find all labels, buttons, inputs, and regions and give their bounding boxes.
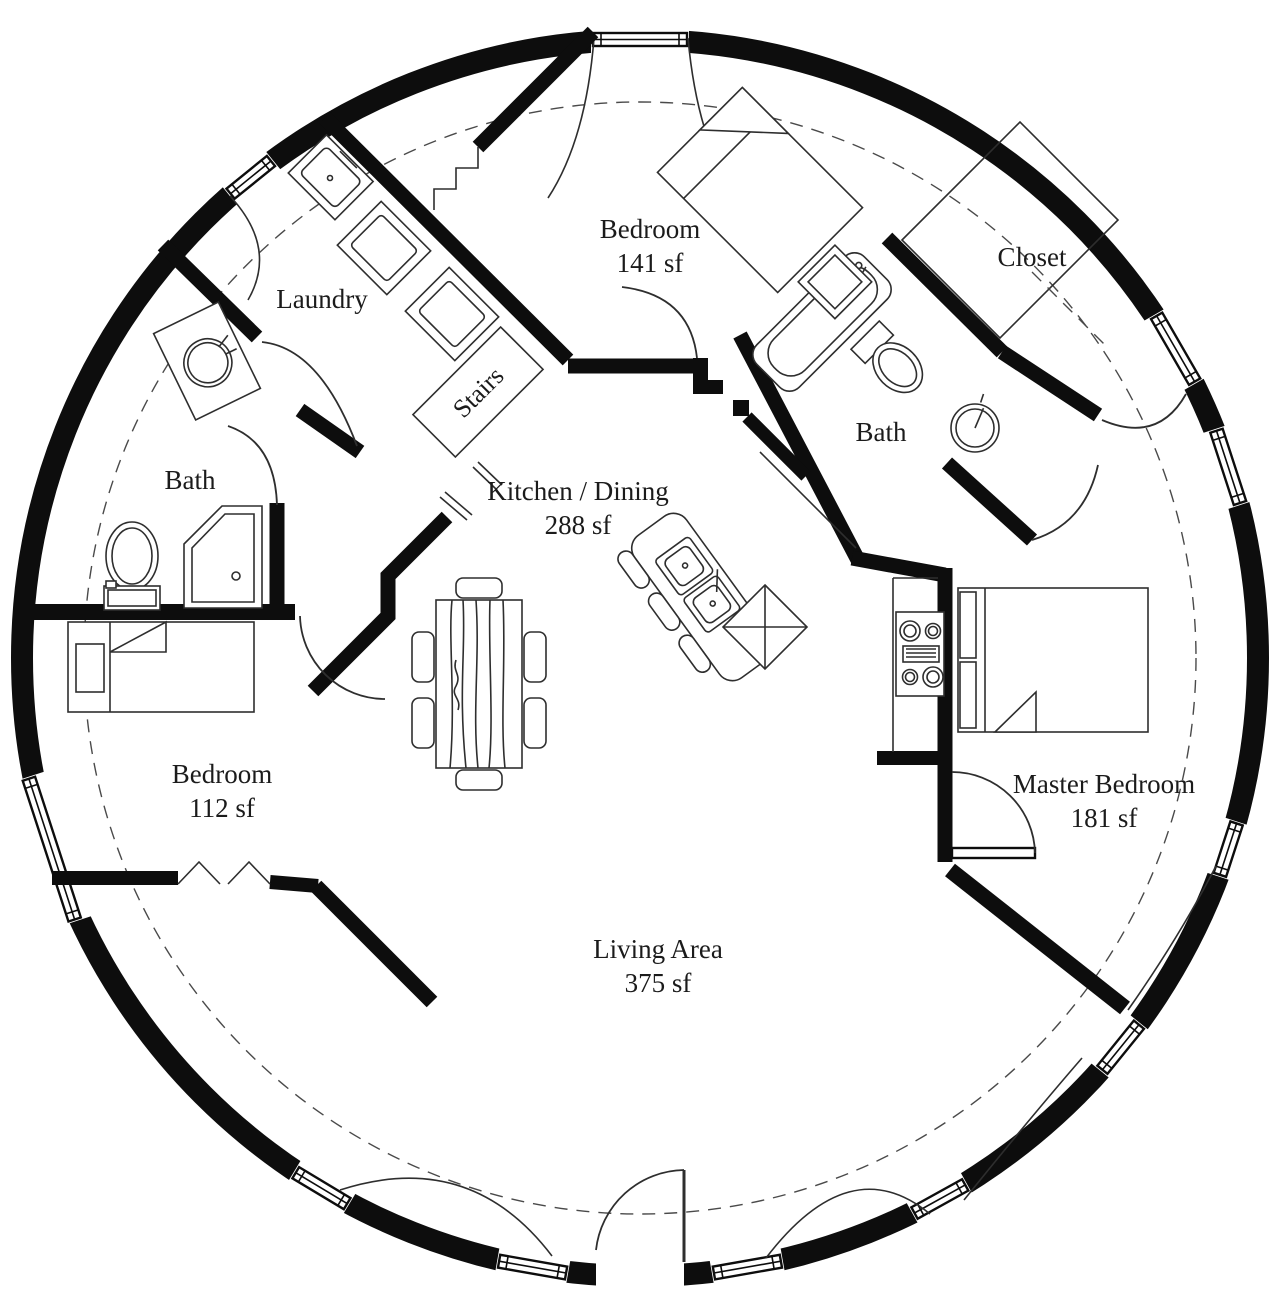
room-label-living: Living Area xyxy=(593,934,723,964)
toilet-icon xyxy=(104,522,160,610)
bedroom-top-door-swing xyxy=(622,287,697,358)
room-label-master: Master Bedroom xyxy=(1013,769,1195,799)
bath-right-door-swing xyxy=(1032,465,1098,540)
room-area-bedroom-top: 141 sf xyxy=(617,248,684,278)
room-label-bath-left: Bath xyxy=(165,465,216,495)
entry-door-icon xyxy=(596,1170,684,1262)
room-area-master: 181 sf xyxy=(1071,803,1138,833)
bed-icon xyxy=(958,588,1148,732)
bath-left-fixtures xyxy=(104,302,262,610)
sidelite-window-icon xyxy=(494,1245,571,1291)
room-label-kitchen: Kitchen / Dining xyxy=(487,476,668,506)
window-icon xyxy=(1204,816,1254,882)
chair-icon xyxy=(524,698,546,748)
room-area-kitchen: 288 sf xyxy=(545,510,612,540)
window-icon xyxy=(12,772,91,927)
floor-plan-drawing: Stairs xyxy=(0,0,1280,1311)
stove-icon xyxy=(896,612,944,696)
chair-icon xyxy=(412,632,434,682)
dining-table-icon xyxy=(412,578,546,790)
room-area-bedroom-left: 112 sf xyxy=(189,793,255,823)
floor-plan-page: Stairs xyxy=(0,0,1280,1311)
window-icon xyxy=(1200,423,1257,510)
bath-left-door-swing xyxy=(228,426,277,505)
room-area-living: 375 sf xyxy=(625,968,692,998)
room-label-closet: Closet xyxy=(997,242,1067,272)
chair-icon xyxy=(412,698,434,748)
chair-icon xyxy=(456,770,502,790)
closet-door-swing xyxy=(1102,394,1186,428)
laundry-door-swing xyxy=(262,342,357,446)
kitchen-counter xyxy=(760,452,944,752)
window-icon xyxy=(591,22,689,56)
chair-icon xyxy=(456,578,502,598)
entry-door-gap xyxy=(596,1258,684,1296)
sidelite-window-icon xyxy=(709,1245,786,1291)
toilet-icon xyxy=(850,320,932,402)
shower-icon xyxy=(184,506,262,608)
stairs-box: Stairs xyxy=(413,327,543,457)
room-label-bath-right: Bath xyxy=(856,417,907,447)
window-icon xyxy=(1141,305,1210,391)
chair-icon xyxy=(524,632,546,682)
room-label-bedroom-top: Bedroom xyxy=(600,214,701,244)
bed-icon xyxy=(68,622,254,712)
sink-icon xyxy=(941,390,1013,462)
kitchen-island-icon xyxy=(612,507,807,696)
room-label-laundry: Laundry xyxy=(276,284,368,314)
room-label-bedroom-left: Bedroom xyxy=(172,759,273,789)
